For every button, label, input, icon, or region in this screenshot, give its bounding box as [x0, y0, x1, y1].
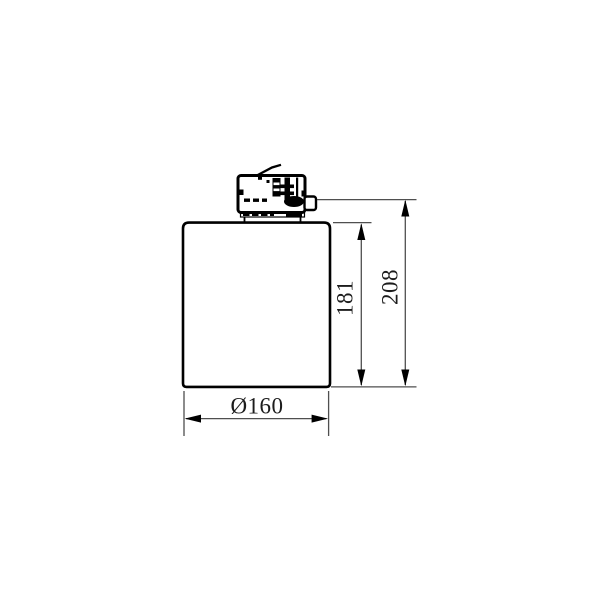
- arrowhead-up-181: [357, 223, 365, 240]
- dimension-label-body-height: 181: [334, 280, 357, 316]
- arrowhead-left-160: [185, 415, 201, 423]
- track-adapter: [238, 165, 316, 223]
- arrowhead-down-181: [357, 370, 365, 387]
- dimension-181: [357, 223, 365, 386]
- dimension-label-diameter: Ø160: [230, 395, 283, 418]
- dimension-label-total-height: 208: [379, 269, 402, 305]
- luminaire-body-outline: [183, 223, 330, 387]
- adapter-side-tab: [305, 197, 317, 211]
- arrowhead-down-208: [401, 370, 409, 387]
- arrowhead-up-208: [401, 200, 409, 217]
- dimension-208: [401, 200, 409, 386]
- arrowhead-right-160: [312, 415, 328, 423]
- technical-drawing-canvas: 181 208 Ø160: [0, 0, 600, 600]
- luminaire-dimension-drawing: [0, 0, 600, 600]
